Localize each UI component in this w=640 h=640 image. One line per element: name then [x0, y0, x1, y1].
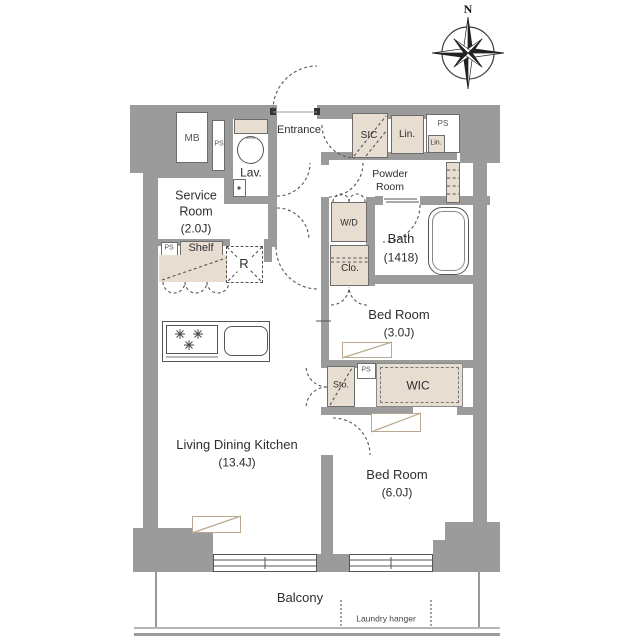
entrance-jamb-right: [314, 108, 320, 115]
plan-line-overlay: N: [0, 0, 640, 640]
wall-hall-powder-a: [321, 157, 329, 165]
label-service-size: (2.0J): [181, 222, 212, 237]
label-ps-ldk: PS: [164, 245, 173, 254]
wall-right: [473, 160, 487, 522]
balcony-rail-left: [155, 572, 157, 628]
door-arc-ldk: [276, 247, 318, 289]
floor-plan: N MB PS Entrance Lav. SIC Lin. PS Lin. S…: [0, 0, 640, 640]
ceiling-symbol-ldk: [192, 516, 241, 533]
label-wic: WIC: [406, 379, 429, 394]
wall-stub-fridge: [264, 239, 272, 262]
wall-service-top: [158, 170, 232, 178]
label-service-room: Service Room: [160, 188, 232, 219]
balcony-rail-bottom: [134, 633, 500, 636]
bathtub-inner: [432, 211, 465, 271]
label-bath-size: (1418): [384, 251, 419, 266]
label-sic: SIC: [361, 130, 378, 143]
entrance-jamb-left: [270, 108, 276, 115]
label-ps-wic: PS: [361, 367, 370, 376]
wall-bottom-right-block: [445, 522, 500, 572]
label-ldk-size: (13.4J): [218, 456, 255, 471]
balcony-rail-bottom-outer: [134, 627, 500, 629]
wall-top-right-block: [460, 105, 500, 163]
wall-left: [143, 173, 158, 572]
label-ldk: Living Dining Kitchen: [176, 437, 297, 453]
label-mb: MB: [185, 133, 200, 146]
label-sto: Sto.: [333, 379, 349, 390]
compass-rose-icon: N: [432, 2, 504, 89]
wall-wic-bottom-b: [457, 407, 473, 415]
ceiling-symbol-bedroom6: [371, 413, 421, 432]
wall-hall-left: [268, 105, 277, 247]
label-refrigerator: R: [237, 256, 250, 272]
ceiling-symbol-bedroom3: [342, 342, 392, 358]
door-arc-storage-bottom: [306, 387, 327, 408]
label-laundry-hanger: Laundry hanger: [356, 614, 416, 625]
label-wd: W/D: [340, 217, 358, 228]
toilet-tank-icon: [234, 119, 268, 134]
label-lav: Lav.: [240, 166, 262, 181]
label-balcony: Balcony: [277, 590, 323, 606]
ldk-closet-area: [159, 255, 227, 282]
kitchen-sink-icon: [224, 326, 268, 356]
door-arc-storage-top: [306, 366, 327, 387]
label-bedroom3: Bed Room: [368, 307, 429, 323]
wall-ldk-bedroom6: [321, 455, 333, 556]
wall-sic-bottom: [321, 152, 457, 160]
window-bedroom6: [349, 554, 433, 572]
label-entrance: Entrance: [277, 124, 321, 138]
bath-sliding-door: [383, 196, 420, 205]
wall-bottom-mid: [317, 554, 349, 572]
lav-sink-icon: [233, 179, 246, 197]
stove-icon: [166, 325, 218, 354]
wall-bottom-left-block: [133, 528, 213, 572]
label-lin: Lin.: [399, 129, 415, 142]
toilet-bowl-icon: [237, 136, 264, 164]
label-ps-entrance: PS: [214, 141, 223, 150]
label-bath: Bath: [388, 231, 415, 247]
label-lin-small: Lin.: [430, 140, 441, 149]
door-arc-powder: [329, 163, 363, 197]
door-arc-service: [277, 208, 309, 240]
label-ps-topright: PS: [438, 119, 449, 129]
label-bedroom3-size: (3.0J): [384, 326, 415, 341]
washer-scallops: [333, 194, 365, 202]
door-arc-closet-left: [331, 287, 349, 305]
door-arc-lav: [277, 163, 310, 196]
label-shelf: Shelf: [188, 242, 213, 256]
door-arc-bedroom6: [333, 418, 370, 455]
wall-bath-bottom: [366, 275, 487, 284]
compass-north-label: N: [464, 2, 473, 16]
label-bedroom6-size: (6.0J): [382, 486, 413, 501]
washstand-icon: [446, 162, 460, 203]
door-arc-entrance: [273, 66, 317, 110]
window-ldk: [213, 554, 317, 572]
label-clo: Clo.: [341, 263, 359, 276]
hanger-scallops: [163, 282, 229, 293]
wall-hall-powder-b: [321, 197, 329, 362]
door-arc-closet-right: [349, 287, 367, 305]
balcony-rail-right: [478, 572, 480, 628]
label-bedroom6: Bed Room: [366, 467, 427, 483]
label-powder-room: Powder Room: [362, 168, 418, 194]
